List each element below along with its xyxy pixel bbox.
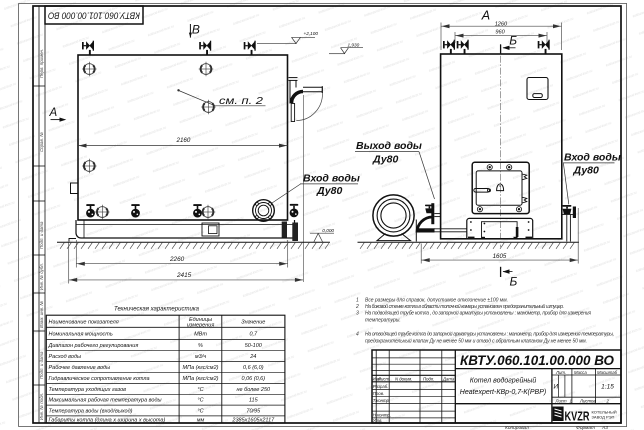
svg-text:Гидравлическое сопротивление к: Гидравлическое сопротивление котла [49, 376, 150, 382]
svg-text:Расход воды: Расход воды [49, 354, 82, 360]
svg-text:24: 24 [249, 354, 256, 360]
svg-text:115: 115 [249, 398, 259, 404]
svg-text:Наименование показателя: Наименование показателя [49, 320, 119, 326]
svg-text:Лист: Лист [377, 376, 389, 381]
svg-text:Максимальная рабочая температу: Максимальная рабочая температура воды [49, 398, 162, 404]
svg-text:А: А [481, 8, 490, 22]
svg-text:КВТУ.060.101.00.000 ВО: КВТУ.060.101.00.000 ВО [48, 11, 140, 21]
svg-text:N докум.: N докум. [395, 376, 412, 381]
svg-text:Ду80: Ду80 [316, 185, 343, 197]
svg-text:Взам. инв. №: Взам. инв. № [39, 301, 44, 328]
svg-text:Техническая характеристика: Техническая характеристика [114, 307, 200, 313]
svg-text:Разраб.: Разраб. [373, 384, 389, 389]
svg-text:Подп. и дата: Подп. и дата [39, 351, 44, 379]
svg-text:Вход воды: Вход воды [303, 173, 360, 185]
svg-text:3: 3 [356, 311, 359, 317]
svg-text:На боковой стенке котла в обла: На боковой стенке котла в области топочн… [365, 303, 564, 310]
svg-text:А: А [49, 107, 58, 119]
svg-text:1:15: 1:15 [601, 384, 614, 391]
svg-text:МВт: МВт [194, 332, 207, 338]
svg-text:Пров.: Пров. [373, 391, 384, 396]
svg-text:температуры.: температуры. [365, 317, 401, 323]
svg-text:Подп. и дата: Подп. и дата [39, 221, 44, 249]
svg-text:Инв. № подл.: Инв. № подл. [39, 393, 44, 420]
svg-text:50-100: 50-100 [245, 343, 263, 349]
svg-text:Ду80: Ду80 [573, 165, 600, 177]
svg-text:А3: А3 [601, 425, 608, 430]
svg-text:На подводящей трубе котла , д: На подводящей трубе котла , до запорной … [365, 310, 591, 317]
svg-text:И: И [554, 384, 559, 391]
svg-text:1260: 1260 [495, 21, 508, 27]
svg-text:КВТУ.060.101.00.000 ВО: КВТУ.060.101.00.000 ВО [460, 353, 614, 368]
svg-text:KVZR: KVZR [565, 410, 590, 424]
svg-text:Б: Б [510, 274, 518, 288]
svg-text:Выход воды: Выход воды [356, 140, 422, 152]
svg-text:Температура воды (вход/выход): Температура воды (вход/выход) [49, 408, 133, 414]
svg-text:Б: Б [509, 33, 517, 47]
svg-text:Масса: Масса [574, 370, 587, 375]
svg-text:Утв.: Утв. [373, 418, 383, 423]
svg-text:Масштаб: Масштаб [597, 370, 618, 375]
svg-text:Heatexpert-КВр-0,7-К(РВР): Heatexpert-КВр-0,7-К(РВР) [460, 389, 546, 396]
svg-text:Вход воды: Вход воды [564, 152, 621, 164]
svg-text:2415: 2415 [176, 272, 192, 279]
svg-text:Котел водогрейный: Котел водогрейный [470, 377, 537, 385]
svg-text:м3/ч: м3/ч [195, 354, 206, 360]
svg-text:Габариты котла (длина х ширина: Габариты котла (длина х ширина х высота) [49, 417, 166, 423]
svg-text:предохранительный клапан Ду не: предохранительный клапан Ду не менее 50 … [365, 337, 587, 344]
svg-text:Номинальная мощность: Номинальная мощность [49, 332, 113, 338]
svg-text:Дата: Дата [442, 376, 455, 381]
svg-text:70/95: 70/95 [246, 408, 261, 414]
svg-text:Инв. № дубл.: Инв. № дубл. [39, 263, 44, 290]
svg-text:°С: °С [197, 387, 203, 393]
svg-text:не более 250: не более 250 [237, 387, 272, 393]
svg-text:2385х1605х2117: 2385х1605х2117 [231, 417, 275, 423]
svg-text:0,06 (0,6): 0,06 (0,6) [242, 376, 266, 382]
svg-text:2260: 2260 [169, 256, 185, 263]
svg-text:Диапазон рабочего регулировани: Диапазон рабочего регулирования [48, 343, 139, 349]
svg-text:МПа (кгс/см2): МПа (кгс/см2) [183, 376, 219, 382]
svg-text:В: В [192, 22, 200, 36]
svg-text:Лист: Лист [555, 398, 567, 403]
svg-text:ЗАВОД РЭП: ЗАВОД РЭП [592, 415, 615, 420]
svg-text:Ду80: Ду80 [372, 154, 399, 166]
svg-text:960: 960 [495, 29, 505, 35]
svg-text:%: % [198, 343, 203, 349]
svg-text:Копировал: Копировал [505, 425, 529, 430]
svg-text:мм: мм [197, 417, 205, 423]
svg-text:Перв. примен.: Перв. примен. [39, 49, 44, 78]
svg-text:0,000: 0,000 [322, 228, 334, 233]
svg-text:измерения: измерения [187, 322, 215, 328]
svg-text:2: 2 [355, 304, 359, 310]
svg-text:1,930: 1,930 [348, 42, 360, 47]
svg-text:°С: °С [197, 398, 203, 404]
svg-text:Формат: Формат [576, 425, 595, 430]
svg-text:0,6 (6,0): 0,6 (6,0) [243, 365, 264, 371]
svg-text:Подп.: Подп. [423, 376, 434, 381]
svg-text:1605: 1605 [493, 253, 507, 260]
svg-text:1: 1 [356, 298, 359, 304]
svg-text:Рабочее давление воды: Рабочее давление воды [49, 365, 111, 371]
svg-text:2160: 2160 [176, 137, 191, 144]
svg-text:°С: °С [197, 408, 203, 414]
svg-text:Температура уходящих газов: Температура уходящих газов [49, 387, 127, 393]
svg-text:4: 4 [356, 331, 359, 337]
svg-text:Справ. №: Справ. № [39, 132, 44, 152]
svg-text:МПа (кгс/см2): МПа (кгс/см2) [183, 365, 219, 371]
svg-text:Значение: Значение [241, 320, 265, 326]
svg-text:На отводящей трубе котла до за: На отводящей трубе котла до запорной арм… [365, 330, 614, 337]
svg-text:Все размеры для справок, допус: Все размеры для справок, допустимое откл… [365, 298, 508, 304]
svg-text:Н.контр.: Н.контр. [373, 412, 391, 417]
svg-text:Т.контр.: Т.контр. [373, 398, 390, 403]
svg-text:см. п. 2: см. п. 2 [219, 96, 264, 107]
svg-text:+2,100: +2,100 [304, 31, 319, 36]
svg-text:Лит.: Лит. [555, 370, 566, 375]
svg-text:Листов: Листов [579, 398, 596, 403]
svg-text:0,7: 0,7 [249, 332, 258, 338]
